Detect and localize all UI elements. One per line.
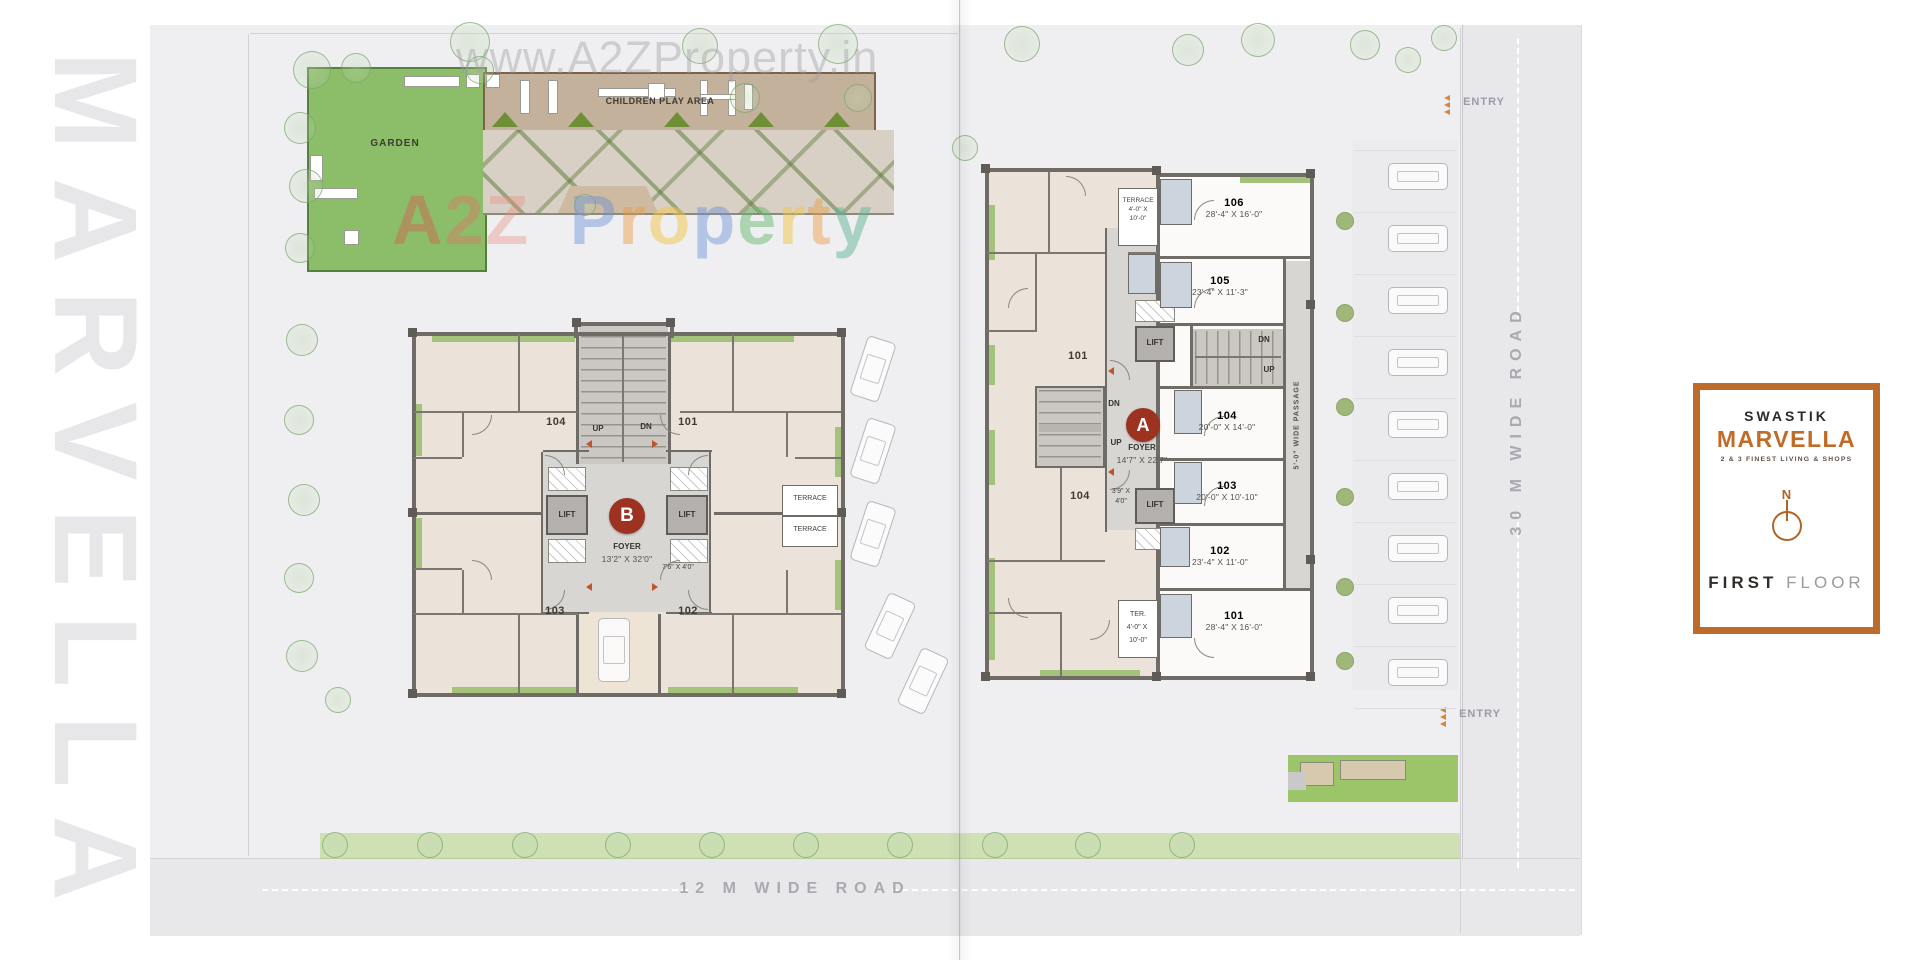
entry-arrow-icon bbox=[1444, 95, 1450, 101]
tree-icon bbox=[286, 640, 318, 672]
wall-segment bbox=[1283, 259, 1286, 591]
bush-icon bbox=[492, 112, 518, 127]
floor-plan-page: MARVELLA GARDEN CHILDREN PLAY AREA ENTRY… bbox=[0, 0, 1920, 960]
brand-letter: P bbox=[570, 181, 619, 259]
b-foyer-dim: 13'2" X 32'0" bbox=[602, 554, 653, 564]
toilet-room bbox=[1160, 594, 1192, 638]
b-stair-up: UP bbox=[592, 424, 603, 433]
car-cabin bbox=[908, 665, 937, 697]
building-b-badge: B bbox=[609, 498, 645, 534]
a-foyer-dim: 14'7" X 22'7" bbox=[1117, 455, 1168, 465]
a-shop-102: 102 23'-4" X 11'-0" bbox=[1192, 545, 1248, 567]
wall-segment bbox=[1035, 386, 1107, 388]
tree-icon bbox=[1075, 832, 1101, 858]
parking-slot-line bbox=[1354, 584, 1456, 585]
wall-column bbox=[408, 328, 417, 337]
wall-segment bbox=[985, 676, 1160, 680]
a-wing-unit-101: 101 bbox=[1068, 350, 1088, 362]
tree-icon bbox=[982, 832, 1008, 858]
a-shop-stair-dn: DN bbox=[1258, 335, 1270, 344]
floor-title-bold: FIRST bbox=[1708, 573, 1777, 592]
parking-slot-line bbox=[1354, 646, 1456, 647]
a-shop-104-dim: 20'-0" X 14'-0" bbox=[1199, 422, 1256, 432]
wall-column bbox=[1306, 169, 1315, 178]
north-indicator-icon: N bbox=[1767, 487, 1807, 543]
a-shop-104: 104 20'-0" X 14'-0" bbox=[1199, 410, 1256, 432]
wall-segment bbox=[412, 332, 845, 336]
a-terrace-top-2: 4'-0" X bbox=[1128, 206, 1147, 213]
wall-column bbox=[1306, 555, 1315, 564]
parking-slot-line bbox=[1354, 274, 1456, 275]
a-lobby-dim-1: 3'9" X bbox=[1112, 488, 1130, 495]
a-lift-mid-label: LIFT bbox=[1147, 500, 1164, 509]
wall-segment bbox=[709, 452, 711, 614]
direction-arrow bbox=[586, 583, 592, 591]
car-icon bbox=[1388, 659, 1448, 686]
wall-segment bbox=[1190, 326, 1193, 388]
wall-segment bbox=[1160, 256, 1310, 259]
car-icon bbox=[896, 647, 949, 716]
a-shop-101-dim: 28'-4" X 16'-0" bbox=[1206, 622, 1263, 632]
a-shop-103-no: 103 bbox=[1196, 480, 1258, 492]
tree-icon bbox=[887, 832, 913, 858]
partition-wall bbox=[795, 457, 841, 459]
brand-letter: p bbox=[692, 181, 737, 259]
entry-bottom-label: ENTRY bbox=[1459, 708, 1501, 720]
hedge-icon bbox=[1336, 488, 1354, 506]
toilet-room bbox=[1160, 527, 1190, 567]
partition-wall bbox=[414, 457, 462, 459]
tree-icon bbox=[289, 169, 323, 203]
a-shop-102-no: 102 bbox=[1192, 545, 1248, 557]
partition-wall bbox=[462, 570, 464, 614]
wall-segment bbox=[412, 693, 845, 697]
car-icon bbox=[1388, 349, 1448, 376]
direction-arrow bbox=[652, 583, 658, 591]
car-cabin bbox=[859, 435, 886, 466]
wall-column bbox=[408, 689, 417, 698]
entry-arrow-icon bbox=[1444, 102, 1450, 108]
wall-column bbox=[981, 164, 990, 173]
tree-icon bbox=[293, 51, 331, 89]
wall-segment bbox=[1158, 676, 1314, 680]
a-shop-105: 105 23'-4" X 11'-3" bbox=[1192, 275, 1248, 297]
stair-rail bbox=[1195, 356, 1281, 358]
a-lobby-dim-2: 4'0" bbox=[1115, 498, 1127, 505]
b-terrace-2: TERRACE bbox=[793, 526, 826, 533]
wall-segment bbox=[658, 614, 661, 697]
toilet-room bbox=[1160, 262, 1192, 308]
bush-icon bbox=[568, 112, 594, 127]
car-cabin bbox=[1397, 481, 1439, 492]
b-stair-dn: DN bbox=[640, 422, 652, 431]
hedge-icon bbox=[1336, 212, 1354, 230]
car-cabin bbox=[1397, 605, 1439, 616]
brand-letter: y bbox=[833, 181, 874, 259]
balcony-green bbox=[416, 518, 422, 570]
car-cabin bbox=[859, 353, 886, 384]
direction-arrow bbox=[1108, 367, 1114, 375]
a-shop-105-dim: 23'-4" X 11'-3" bbox=[1192, 287, 1248, 297]
wall-segment bbox=[666, 450, 712, 452]
a-wing-stair-dn: DN bbox=[1108, 399, 1120, 408]
partition-wall bbox=[987, 330, 1037, 332]
tree-icon bbox=[284, 563, 314, 593]
partition-wall bbox=[786, 570, 788, 614]
car-icon bbox=[1388, 163, 1448, 190]
direction-arrow bbox=[652, 440, 658, 448]
stair-landing bbox=[1039, 424, 1101, 432]
tree-icon bbox=[285, 233, 315, 263]
url-watermark: www.A2ZProperty.in bbox=[456, 32, 878, 84]
b-terrace-1: TERRACE bbox=[793, 495, 826, 502]
car-icon bbox=[849, 335, 897, 403]
balcony-green bbox=[989, 558, 995, 620]
entry-arrow-icon bbox=[1440, 714, 1446, 720]
balcony-green bbox=[989, 345, 995, 385]
car-icon bbox=[1388, 225, 1448, 252]
toilet-room bbox=[1128, 254, 1156, 294]
a-lift-top-label: LIFT bbox=[1147, 338, 1164, 347]
parking-slot-line bbox=[1354, 150, 1456, 151]
brand-letter: o bbox=[648, 181, 693, 259]
partition-wall bbox=[518, 615, 520, 693]
tree-icon bbox=[325, 687, 351, 713]
a-shop-101-no: 101 bbox=[1206, 610, 1263, 622]
entry-top-label: ENTRY bbox=[1463, 96, 1505, 108]
a-wing-stair-up: UP bbox=[1110, 438, 1121, 447]
wall-segment bbox=[576, 614, 579, 697]
garden-bench-icon bbox=[344, 230, 359, 245]
wall-column bbox=[666, 318, 675, 327]
partition-wall bbox=[414, 568, 462, 570]
car-cabin bbox=[1397, 543, 1439, 554]
balcony-green bbox=[432, 336, 575, 342]
brand-letter: e bbox=[737, 181, 778, 259]
legend-tagline: 2 & 3 FINEST LIVING & SHOPS bbox=[1721, 456, 1853, 463]
brand-letter: r bbox=[618, 181, 647, 259]
wall-segment bbox=[1160, 458, 1286, 461]
parking-slot-line bbox=[1354, 460, 1456, 461]
car-icon bbox=[1388, 597, 1448, 624]
parking-slot-line bbox=[1354, 708, 1456, 709]
garden-label: GARDEN bbox=[370, 138, 419, 149]
legend-brand-main: MARVELLA bbox=[1717, 426, 1856, 453]
road-centerline bbox=[262, 889, 688, 891]
wall-segment bbox=[985, 168, 1160, 172]
gate-structure bbox=[1340, 760, 1406, 780]
wall-segment bbox=[1158, 173, 1314, 177]
partition-wall bbox=[732, 334, 734, 412]
b-lobby-dim: 7'6" X 4'0" bbox=[662, 564, 694, 571]
wall-column bbox=[981, 672, 990, 681]
partition-wall bbox=[414, 411, 578, 413]
wall-column bbox=[1306, 672, 1315, 681]
car-icon bbox=[1388, 287, 1448, 314]
wall-column bbox=[1152, 672, 1161, 681]
tree-icon bbox=[1169, 832, 1195, 858]
hedge-icon bbox=[1336, 398, 1354, 416]
tree-icon bbox=[699, 832, 725, 858]
wall-segment bbox=[574, 322, 674, 326]
balcony-green bbox=[668, 336, 794, 342]
tree-icon bbox=[605, 832, 631, 858]
tree-icon bbox=[322, 832, 348, 858]
wall-column bbox=[1152, 166, 1161, 175]
wall-segment bbox=[576, 334, 579, 464]
gate-structure bbox=[1288, 772, 1306, 790]
tree-icon bbox=[284, 112, 316, 144]
parking-slot-line bbox=[1354, 398, 1456, 399]
tree-icon bbox=[284, 405, 314, 435]
b-lift-left-label: LIFT bbox=[559, 510, 576, 519]
partition-wall bbox=[680, 411, 841, 413]
a-shop-106: 106 28'-4" X 16'-0" bbox=[1206, 197, 1263, 219]
entry-arrow-icon bbox=[1444, 109, 1450, 115]
bottom-road-label: 12 M WIDE ROAD bbox=[679, 880, 910, 898]
wall-segment bbox=[541, 452, 543, 614]
car-cabin bbox=[1397, 419, 1439, 430]
tree-icon bbox=[844, 84, 872, 112]
road-centerline bbox=[1517, 38, 1519, 322]
wall-column bbox=[408, 508, 417, 517]
road-centerline bbox=[1517, 512, 1519, 868]
partition-wall bbox=[1035, 252, 1037, 332]
lift-lobby-hatch bbox=[548, 539, 586, 563]
wall-column bbox=[837, 508, 846, 517]
a-terrace-bot-3: 10'-0" bbox=[1129, 637, 1147, 644]
partition-wall bbox=[786, 413, 788, 457]
car-cabin bbox=[1397, 295, 1439, 306]
partition-wall bbox=[1060, 468, 1062, 560]
bush-icon bbox=[664, 112, 690, 127]
b-unit-101: 101 bbox=[678, 416, 698, 428]
play-equipment-icon bbox=[520, 80, 530, 114]
tree-icon bbox=[793, 832, 819, 858]
wall-column bbox=[837, 689, 846, 698]
b-unit-102: 102 bbox=[678, 605, 698, 617]
b-unit-104: 104 bbox=[546, 416, 566, 428]
a-shop-106-no: 106 bbox=[1206, 197, 1263, 209]
car-cabin bbox=[859, 518, 886, 549]
a-shop-101: 101 28'-4" X 16'-0" bbox=[1206, 610, 1263, 632]
hedge-icon bbox=[1336, 652, 1354, 670]
brand-letter: t bbox=[807, 181, 832, 259]
b-foyer-label: FOYER bbox=[613, 542, 641, 551]
wall-segment bbox=[1160, 588, 1310, 591]
b-lift-right-label: LIFT bbox=[679, 510, 696, 519]
page-fold-shading bbox=[948, 0, 972, 960]
wall-segment bbox=[1160, 323, 1286, 326]
car-cabin bbox=[1397, 357, 1439, 368]
wall-column bbox=[572, 318, 581, 327]
building-a-badge: A bbox=[1126, 408, 1160, 442]
hedge-icon bbox=[1336, 304, 1354, 322]
partition-wall bbox=[987, 560, 1105, 562]
partition-wall bbox=[518, 334, 520, 412]
boundary-line bbox=[248, 34, 249, 856]
partition-wall bbox=[1060, 612, 1062, 676]
car-cabin bbox=[875, 610, 904, 642]
stair-rail bbox=[622, 336, 624, 462]
car-icon bbox=[1388, 535, 1448, 562]
play-area-label: CHILDREN PLAY AREA bbox=[606, 96, 715, 106]
tree-icon bbox=[417, 832, 443, 858]
brand-letter: 2 bbox=[445, 181, 486, 259]
tree-icon bbox=[341, 53, 371, 83]
car-icon bbox=[598, 618, 630, 682]
tree-icon bbox=[1431, 25, 1457, 51]
play-equipment-icon bbox=[548, 80, 558, 114]
partition-wall bbox=[732, 615, 734, 693]
car-icon bbox=[1388, 411, 1448, 438]
tree-icon bbox=[286, 324, 318, 356]
tree-icon bbox=[1395, 47, 1421, 73]
north-circle bbox=[1772, 511, 1802, 541]
brand-watermark: A2Z Property bbox=[392, 180, 874, 260]
car-cabin bbox=[1397, 171, 1439, 182]
bush-icon bbox=[748, 112, 774, 127]
car-cabin bbox=[603, 636, 625, 663]
parking-slot-line bbox=[1354, 522, 1456, 523]
brand-letter: Z bbox=[486, 181, 531, 259]
garden-bench-icon bbox=[404, 76, 460, 87]
entry-arrow-icon bbox=[1440, 721, 1446, 727]
balcony-green bbox=[989, 620, 995, 660]
floor-title: FIRST FLOOR bbox=[1708, 573, 1864, 593]
wall-segment bbox=[985, 168, 989, 680]
tree-icon bbox=[1004, 26, 1040, 62]
wall-segment bbox=[543, 450, 589, 452]
brand-letter: A bbox=[392, 181, 445, 259]
car-icon bbox=[849, 500, 897, 568]
wall-column bbox=[1306, 300, 1315, 309]
right-road-label: 30 M WIDE ROAD bbox=[1508, 304, 1526, 535]
wall-segment bbox=[1160, 523, 1286, 526]
b-unit-103: 103 bbox=[545, 605, 565, 617]
boundary-line bbox=[1460, 28, 1461, 933]
a-terrace-top-3: 10'-0" bbox=[1130, 215, 1147, 222]
car-cabin bbox=[1397, 667, 1439, 678]
wall-segment bbox=[1035, 386, 1037, 468]
direction-arrow bbox=[586, 440, 592, 448]
direction-arrow bbox=[1108, 468, 1114, 476]
parking-slot-line bbox=[1354, 336, 1456, 337]
balcony-green bbox=[989, 430, 995, 485]
a-terrace-top-1: TERRACE bbox=[1122, 197, 1153, 204]
car-icon bbox=[849, 417, 897, 485]
tree-icon bbox=[1350, 30, 1380, 60]
a-foyer-label: FOYER bbox=[1128, 443, 1156, 452]
road-centerline bbox=[892, 889, 1575, 891]
wall-segment bbox=[414, 512, 541, 515]
tree-icon bbox=[730, 83, 760, 113]
a-wing-unit-104: 104 bbox=[1070, 490, 1090, 502]
wall-segment bbox=[1310, 173, 1314, 680]
a-shop-103: 103 20'-0" X 10'-10" bbox=[1196, 480, 1258, 502]
car-icon bbox=[1388, 473, 1448, 500]
brand-letter: r bbox=[778, 181, 807, 259]
bush-icon bbox=[824, 112, 850, 127]
partition-wall bbox=[987, 252, 1105, 254]
parking-slot-line bbox=[1354, 212, 1456, 213]
partition-wall bbox=[462, 411, 464, 457]
a-shop-stair-up: UP bbox=[1263, 365, 1274, 374]
floor-title-light: FLOOR bbox=[1786, 573, 1865, 592]
brand-letter bbox=[530, 181, 569, 259]
a-shop-105-no: 105 bbox=[1192, 275, 1248, 287]
legend-brand-top: SWASTIK bbox=[1744, 408, 1829, 424]
balcony-green bbox=[1240, 177, 1310, 183]
tree-icon bbox=[512, 832, 538, 858]
hedge-icon bbox=[1336, 578, 1354, 596]
car-cabin bbox=[1397, 233, 1439, 244]
wall-segment bbox=[1035, 466, 1107, 468]
partition-wall bbox=[1048, 172, 1050, 252]
a-terrace-bot-2: 4'-0" X bbox=[1127, 624, 1148, 631]
tree-icon bbox=[1172, 34, 1204, 66]
a-passage-label: 5'-0" WIDE PASSAGE bbox=[1294, 381, 1301, 470]
wall-segment bbox=[1160, 386, 1286, 389]
partition-wall bbox=[680, 613, 841, 615]
legend-panel: SWASTIK MARVELLA 2 & 3 FINEST LIVING & S… bbox=[1693, 383, 1880, 634]
a-shop-102-dim: 23'-4" X 11'-0" bbox=[1192, 557, 1248, 567]
page-fold-line bbox=[959, 0, 960, 960]
wall-segment bbox=[1105, 228, 1107, 532]
a-shop-103-dim: 20'-0" X 10'-10" bbox=[1196, 492, 1258, 502]
car-icon bbox=[863, 592, 916, 661]
toilet-room bbox=[1160, 179, 1192, 225]
wall-column bbox=[837, 328, 846, 337]
wall-segment bbox=[668, 334, 671, 464]
a-shop-106-dim: 28'-4" X 16'-0" bbox=[1206, 209, 1263, 219]
a-shop-104-no: 104 bbox=[1199, 410, 1256, 422]
tree-icon bbox=[288, 484, 320, 516]
a-terrace-bot-1: TER. bbox=[1130, 611, 1146, 618]
tree-icon bbox=[1241, 23, 1275, 57]
